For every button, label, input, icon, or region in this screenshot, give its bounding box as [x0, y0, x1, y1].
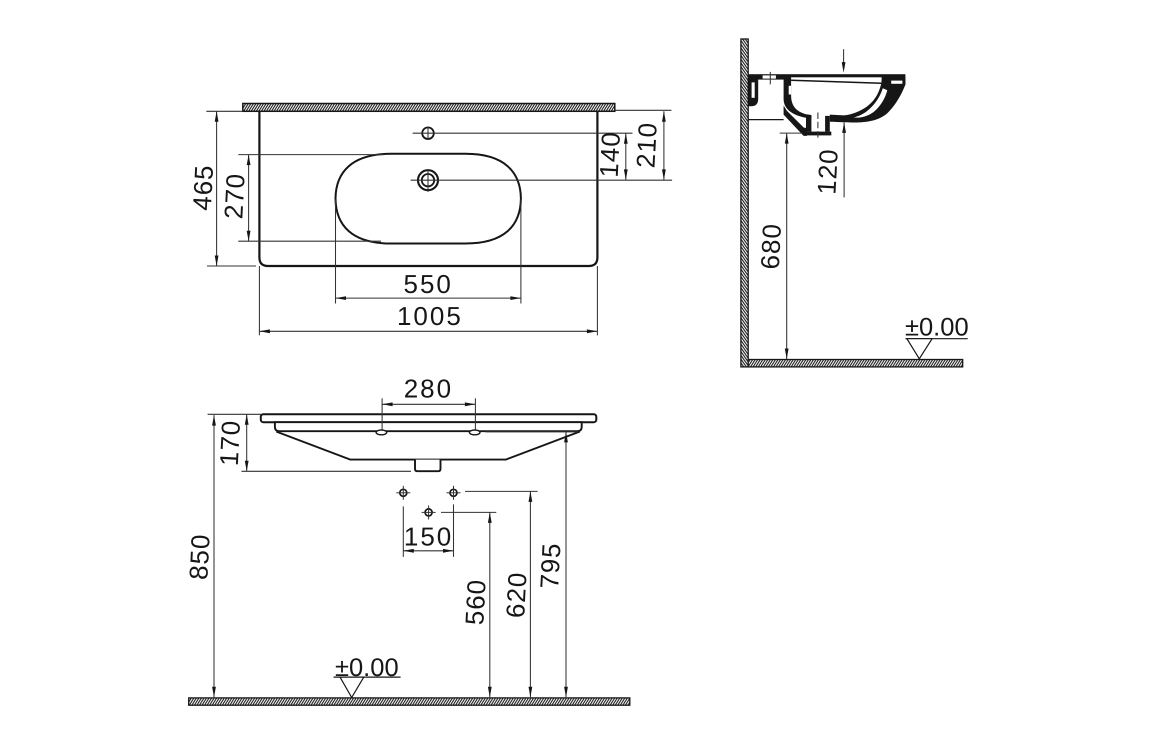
- svg-text:620: 620: [500, 571, 532, 619]
- svg-text:550: 550: [404, 269, 453, 299]
- svg-text:±0.00: ±0.00: [905, 314, 969, 342]
- svg-text:680: 680: [755, 222, 787, 270]
- svg-text:465: 465: [187, 164, 219, 212]
- svg-text:120: 120: [811, 148, 843, 196]
- svg-text:850: 850: [183, 533, 215, 581]
- svg-text:210: 210: [630, 121, 662, 169]
- svg-text:270: 270: [218, 172, 250, 220]
- svg-text:150: 150: [404, 522, 453, 552]
- svg-text:170: 170: [214, 419, 246, 467]
- svg-text:140: 140: [594, 131, 626, 179]
- svg-text:795: 795: [534, 542, 566, 590]
- svg-text:560: 560: [459, 578, 491, 626]
- svg-text:280: 280: [404, 373, 453, 403]
- svg-text:1005: 1005: [397, 301, 463, 331]
